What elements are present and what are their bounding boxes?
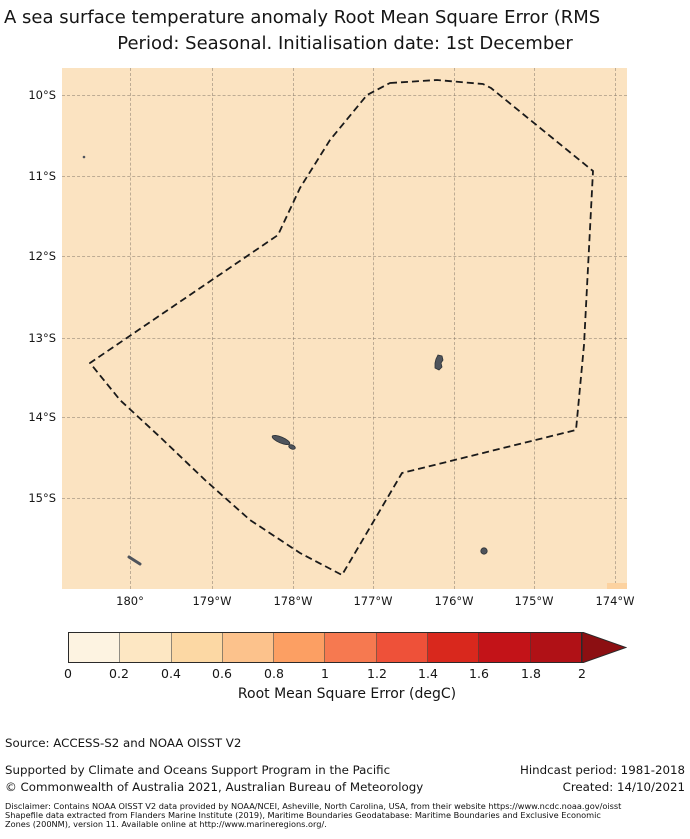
x-axis-tick-label: 180° (100, 594, 160, 608)
colorbar-tick-label: 0.2 (97, 666, 141, 681)
y-axis-tick-label: 13°S (0, 331, 56, 345)
colorbar-segment (120, 633, 171, 662)
island-marker-wallis (435, 355, 443, 370)
x-axis-tick-label: 175°W (504, 594, 564, 608)
colorbar-extend-arrow (582, 632, 627, 663)
colorbar-tick-label: 2 (560, 666, 604, 681)
colorbar-tick-label: 0.6 (200, 666, 244, 681)
footer-copyright: © Commonwealth of Australia 2021, Austra… (5, 780, 423, 794)
colorbar-tick-label: 0.4 (149, 666, 193, 681)
colorbar-segment (274, 633, 325, 662)
footer-source: Source: ACCESS-S2 and NOAA OISST V2 (5, 736, 241, 750)
island-marker-futuna (271, 434, 291, 447)
x-axis-tick-label: 178°W (263, 594, 323, 608)
colorbar-segment (377, 633, 428, 662)
colorbar (68, 632, 582, 663)
y-axis-tick-label: 12°S (0, 249, 56, 263)
y-axis-tick-label: 14°S (0, 410, 56, 424)
footer-created-date: Created: 14/10/2021 (385, 780, 685, 794)
colorbar-segment (479, 633, 530, 662)
colorbar-segment (223, 633, 274, 662)
colorbar-segment (172, 633, 223, 662)
island-marker-tiny-northwest (83, 156, 86, 159)
island-marker-southeast (481, 548, 487, 554)
colorbar-tick-label: 0 (46, 666, 90, 681)
y-axis-tick-label: 15°S (0, 491, 56, 505)
eez-boundary-dashed (90, 80, 593, 575)
colorbar-segment (69, 633, 120, 662)
page-title: A sea surface temperature anomaly Root M… (4, 7, 690, 28)
colorbar-tick-label: 0.8 (252, 666, 296, 681)
page-subtitle: Period: Seasonal. Initialisation date: 1… (0, 33, 690, 54)
colorbar-tick-label: 1 (303, 666, 347, 681)
colorbar-segment (428, 633, 479, 662)
colorbar-tick-label: 1.8 (509, 666, 553, 681)
colorbar-tick-label: 1.4 (406, 666, 450, 681)
x-axis-tick-label: 179°W (182, 594, 242, 608)
disclaimer-line: Zones (200NM), version 11. Available onl… (5, 820, 689, 829)
colorbar-segment (531, 633, 581, 662)
colorbar-tick-label: 1.2 (355, 666, 399, 681)
footer-hindcast-period: Hindcast period: 1981-2018 (385, 763, 685, 777)
footer-supported-by: Supported by Climate and Oceans Support … (5, 763, 390, 777)
island-marker-alofi (288, 444, 296, 450)
x-axis-tick-label: 176°W (424, 594, 484, 608)
x-axis-tick-label: 174°W (585, 594, 645, 608)
colorbar-segment (325, 633, 376, 662)
island-marker-southwest (129, 557, 140, 564)
y-axis-tick-label: 11°S (0, 169, 56, 183)
colorbar-title: Root Mean Square Error (degC) (68, 686, 626, 702)
disclaimer-line: Disclaimer: Contains NOAA OISST V2 data … (5, 802, 689, 811)
colorbar-tick-label: 1.6 (457, 666, 501, 681)
map-panel (62, 68, 627, 589)
disclaimer-line: Shapefile data extracted from Flanders M… (5, 811, 689, 820)
x-axis-tick-label: 177°W (343, 594, 403, 608)
y-axis-tick-label: 10°S (0, 88, 56, 102)
